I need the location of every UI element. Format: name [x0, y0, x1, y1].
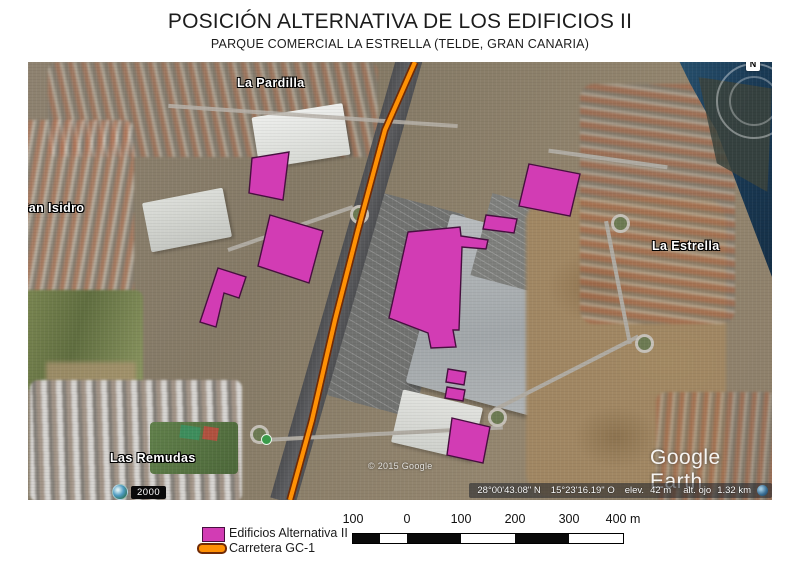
satellite-map[interactable]: La PardillaSan IsidroLa EstrellaLas Remu…: [28, 62, 772, 500]
building-overlay: [445, 387, 465, 401]
building-overlay: [519, 164, 580, 216]
scale-segment: [353, 534, 380, 543]
eye-altitude-label: alt. ojo: [683, 485, 711, 496]
north-indicator[interactable]: N: [746, 62, 760, 71]
map-overlay-svg: [28, 62, 772, 500]
legend-building-swatch: [202, 527, 225, 542]
page-subtitle: PARQUE COMERCIAL LA ESTRELLA (TELDE, GRA…: [0, 37, 800, 51]
page: POSICIÓN ALTERNATIVA DE LOS EDIFICIOS II…: [0, 0, 800, 566]
scale-bar: 1000100200300400 m: [340, 512, 660, 552]
longitude-value: 15°23'16.19" O: [551, 485, 615, 496]
scale-segment: [407, 534, 461, 543]
compass-inner-ring: [729, 76, 772, 126]
historical-imagery-control[interactable]: 2000: [112, 484, 166, 500]
scale-segment: [569, 534, 623, 543]
status-bar: 28°00'43.08" N 15°23'16.19" O elev. 42 m…: [469, 483, 772, 498]
building-overlay: [249, 152, 289, 200]
scale-tick-label: 400 m: [606, 512, 641, 526]
building-overlay: [447, 418, 490, 463]
globe-icon: [757, 485, 768, 496]
scale-segment: [461, 534, 515, 543]
imagery-year-badge[interactable]: 2000: [131, 486, 166, 499]
scale-segments: [352, 533, 624, 544]
copyright-text: © 2015 Google: [368, 461, 433, 471]
legend-building-label: Edificios Alternativa II: [229, 526, 348, 540]
building-overlay: [483, 215, 517, 233]
building-overlay: [446, 369, 466, 385]
scale-tick-label: 300: [559, 512, 580, 526]
elevation-label: elev.: [625, 485, 644, 496]
legend-road-label: Carretera GC-1: [229, 541, 315, 555]
latitude-value: 28°00'43.08" N: [477, 485, 540, 496]
building-overlay: [200, 268, 246, 327]
scale-tick-label: 0: [404, 512, 411, 526]
scale-tick-label: 100: [451, 512, 472, 526]
building-overlay: [258, 215, 323, 283]
header: POSICIÓN ALTERNATIVA DE LOS EDIFICIOS II…: [0, 10, 800, 51]
scale-segment: [380, 534, 407, 543]
scale-tick-label: 200: [505, 512, 526, 526]
photo-icon[interactable]: [261, 434, 272, 445]
eye-altitude-value: 1.32 km: [717, 485, 751, 496]
elevation-value: 42 m: [650, 485, 671, 496]
page-title: POSICIÓN ALTERNATIVA DE LOS EDIFICIOS II: [0, 10, 800, 34]
scale-tick-label: 100: [343, 512, 364, 526]
building-overlay: [389, 227, 488, 348]
scale-tick-labels: 1000100200300400 m: [340, 512, 660, 528]
scale-segment: [515, 534, 569, 543]
clock-icon[interactable]: [112, 484, 128, 500]
legend-road-swatch: [197, 543, 227, 554]
